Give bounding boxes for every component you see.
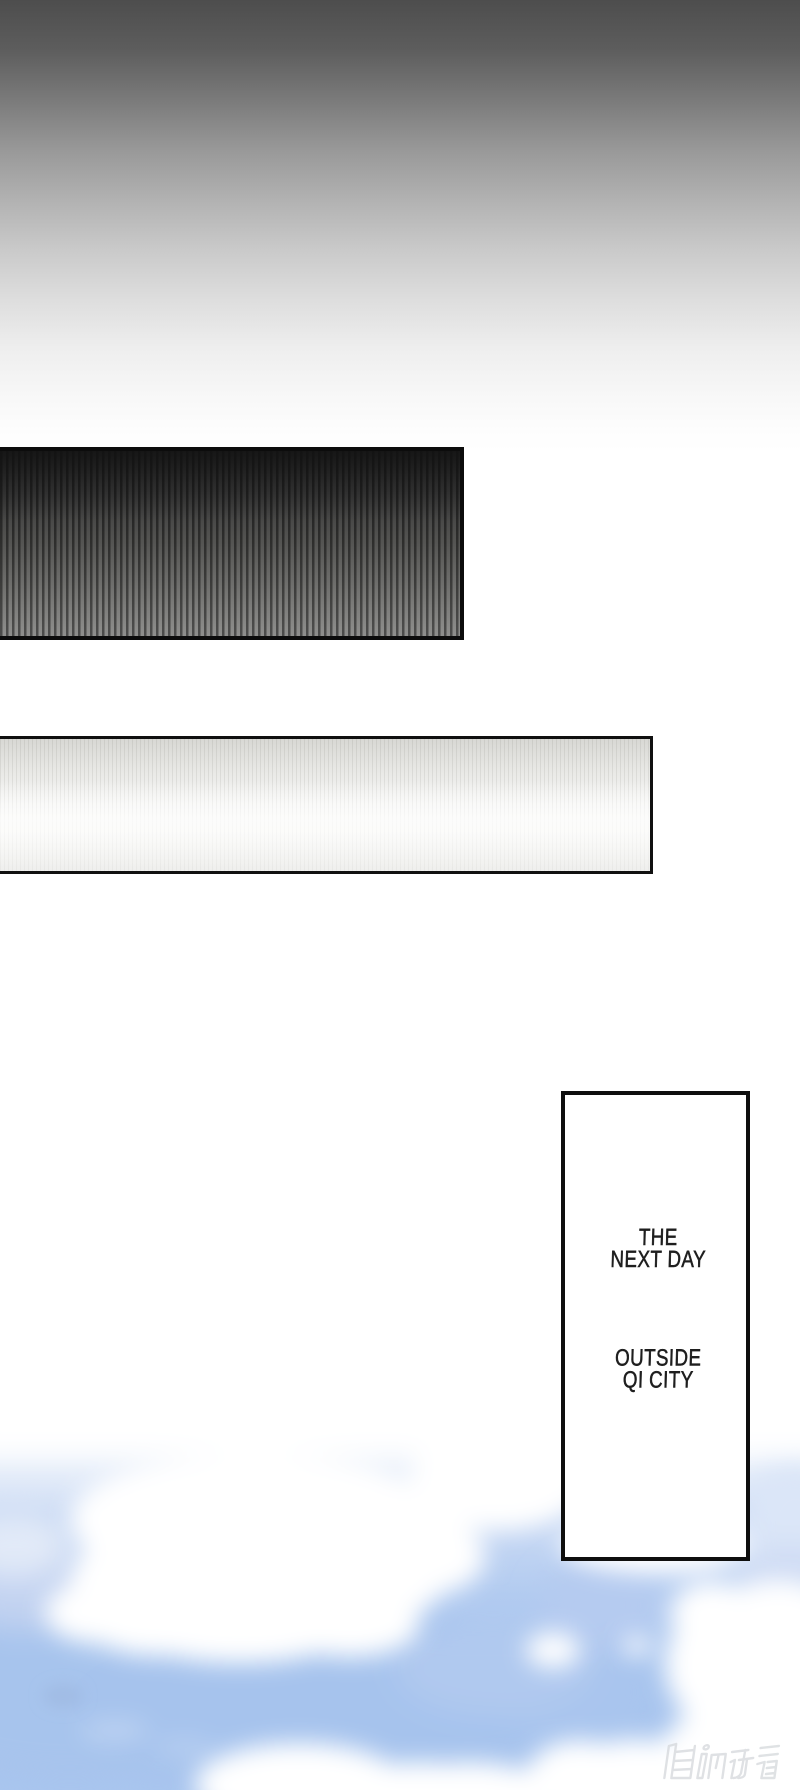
svg-text:NEXT DAY: NEXT DAY [610, 1246, 706, 1272]
svg-text:QI CITY: QI CITY [623, 1367, 694, 1393]
